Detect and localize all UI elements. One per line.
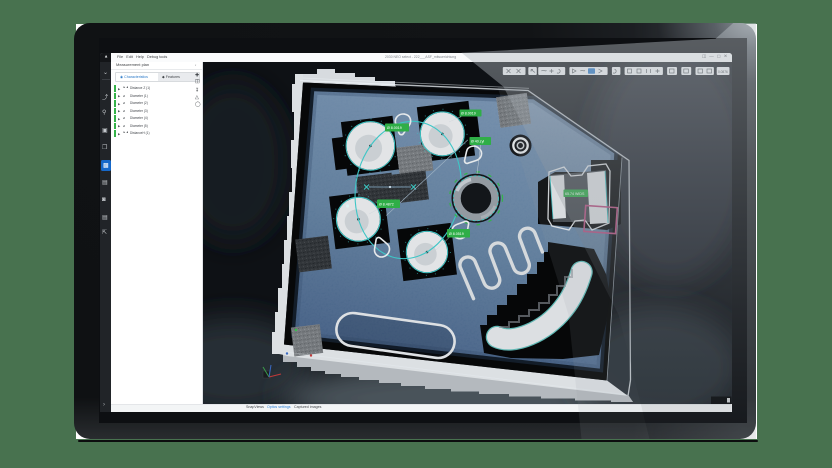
svg-text:Ø 8.0019: Ø 8.0019 — [461, 111, 476, 115]
svg-text:Ø 8.0519: Ø 8.0519 — [449, 232, 464, 236]
svg-text:0.0876: 0.0876 — [718, 69, 728, 73]
svg-text:Ø 40.zyl: Ø 40.zyl — [471, 139, 484, 143]
svg-text:65.74 WIDS: 65.74 WIDS — [565, 191, 585, 195]
svg-text:Ø 8.4872: Ø 8.4872 — [379, 202, 394, 206]
svg-text:Ø 8.0019: Ø 8.0019 — [387, 126, 402, 130]
